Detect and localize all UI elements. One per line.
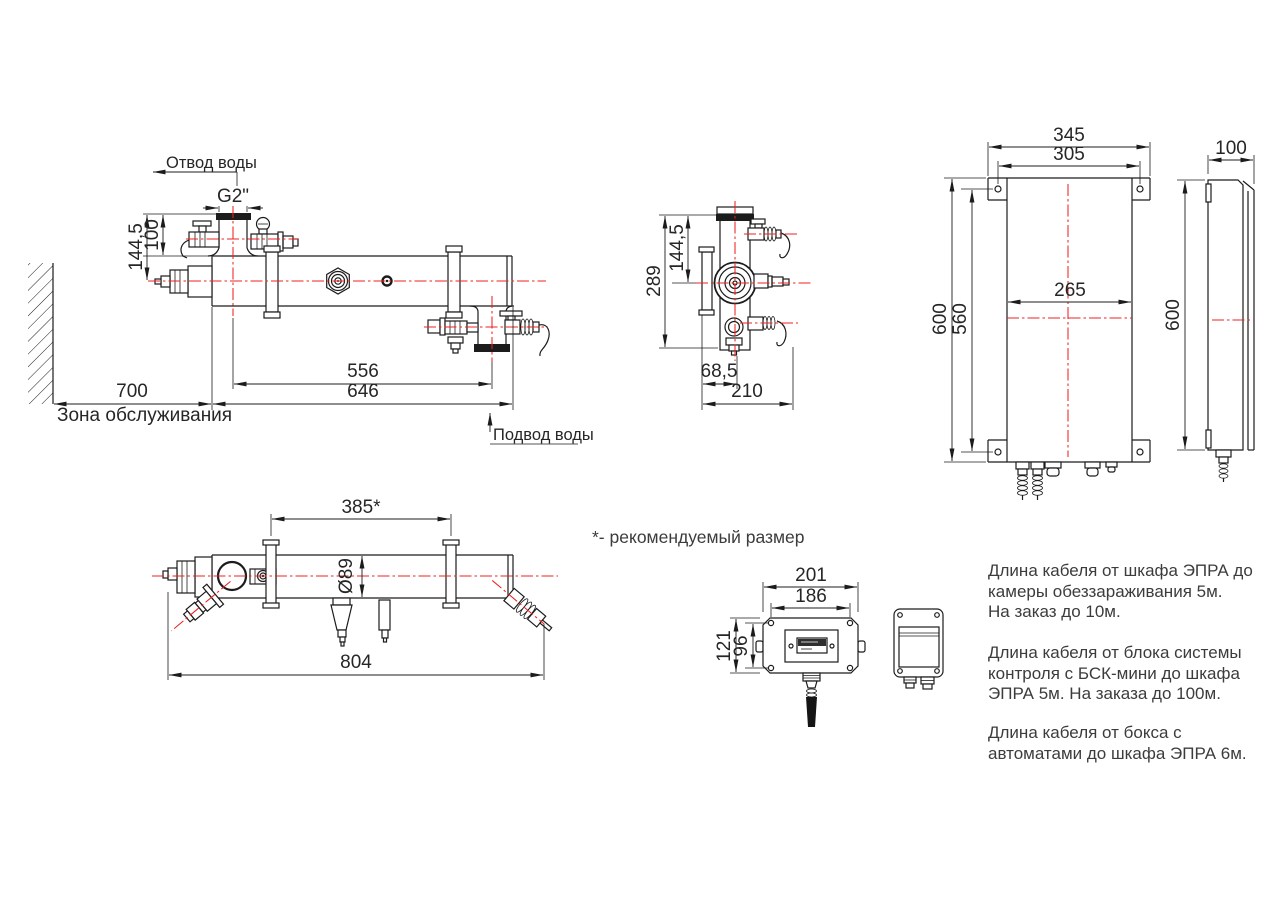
dim-cab-mount-width-text: 305	[1053, 144, 1085, 165]
inlet-label-leader: Подвод воды	[490, 413, 594, 444]
dim-cab-depth-text: 100	[1215, 138, 1247, 159]
cabinet-side-door	[1243, 181, 1254, 450]
top-view-probe	[379, 600, 390, 642]
side-tab-left	[756, 641, 763, 652]
dim-box-mount-width-text: 186	[795, 586, 827, 607]
cabinet-side-gland	[1216, 450, 1231, 482]
display-screen	[798, 639, 826, 646]
dim-cab-width-text: 345	[1053, 125, 1085, 146]
dim-box-mount-height-text: 96	[731, 635, 752, 656]
drain-valve-bottom	[428, 318, 478, 353]
dim-wall-offset-text: 700	[116, 381, 148, 402]
dim-body-length-text: 646	[347, 381, 379, 402]
note-line: Длина кабеля от бокса с	[988, 723, 1273, 744]
dim-100: 100	[142, 215, 163, 255]
breaker-box-glands	[904, 677, 934, 689]
dim-cab-inner-width-text: 265	[1054, 280, 1086, 301]
outlet-water-label: Отвод воды	[166, 154, 257, 172]
end-view-lower-valve	[748, 317, 786, 346]
breaker-box-view	[894, 609, 943, 689]
control-box-cable	[803, 673, 820, 727]
dim-overall-length-text: 804	[340, 652, 372, 673]
top-view-right-diagonal-valve	[487, 574, 556, 636]
dim-186: 186	[771, 586, 850, 617]
side-view: Отвод воды G2" 144,5 100 700 Зона обслуж…	[28, 154, 594, 444]
dim-valve-height-text: 100	[142, 219, 163, 251]
wall-hatch	[28, 263, 53, 404]
mounting-bracket-left	[264, 246, 280, 318]
note-line: Длина кабеля от шкафа ЭПРА до	[988, 561, 1273, 582]
technical-drawing-page: Отвод воды G2" 144,5 100 700 Зона обслуж…	[0, 0, 1273, 900]
dim-600-side: 600	[1163, 180, 1205, 450]
end-view-bracket	[699, 247, 714, 315]
note-paragraph-3: Длина кабеля от бокса с автоматами до шк…	[988, 723, 1273, 764]
note-paragraph-2: Длина кабеля от блока системы контроля с…	[988, 643, 1273, 705]
dim-700: 700	[54, 307, 212, 410]
note-line: Длина кабеля от блока системы	[988, 643, 1273, 664]
cabinet-side-body	[1208, 180, 1243, 450]
top-view: 385* Ø89 804	[152, 497, 558, 680]
dim-bracket-span-text: 385*	[341, 497, 381, 518]
dim-ports-span-text: 556	[347, 361, 379, 382]
dim-depth-text: 210	[731, 381, 763, 402]
dim-100-side: 100	[1208, 138, 1254, 184]
control-box-view: 201 186 121 96	[714, 565, 865, 727]
drawing-svg: Отвод воды G2" 144,5 100 700 Зона обслуж…	[0, 0, 1273, 900]
end-view-upper-valve	[748, 219, 790, 258]
side-tab-right	[858, 641, 865, 652]
dim-385: 385*	[271, 497, 451, 536]
cabinet-front-outline	[988, 178, 1150, 462]
dim-cab-mount-height-text: 560	[950, 303, 971, 335]
dim-thread-text: G2"	[217, 186, 249, 207]
outlet-label-leader: Отвод воды	[153, 154, 257, 186]
dim-265: 265	[1008, 280, 1131, 302]
dim-cab-height-text: 600	[930, 303, 951, 335]
footnote: *- рекомендуемый размер	[592, 527, 805, 548]
end-view: 289 144,5 68,5 210	[644, 201, 812, 410]
hinge-top	[1206, 184, 1211, 202]
dim-axis-height-end-text: 144,5	[667, 224, 688, 272]
dim-height-text: 289	[644, 265, 665, 297]
dim-560: 560	[950, 189, 993, 452]
note-line: ЭПРА 5м. На заказа до 100м.	[988, 684, 1273, 705]
dim-offset-text: 68,5	[701, 361, 738, 382]
top-view-end-cap	[163, 557, 212, 597]
note-line: На заказ до 10м.	[988, 602, 1273, 623]
dim-144-5-end: 144,5	[667, 216, 696, 283]
end-view-sample-port	[754, 274, 789, 288]
hinge-bottom	[1206, 430, 1211, 448]
note-paragraph-1: Длина кабеля от шкафа ЭПРА до камеры обе…	[988, 561, 1273, 623]
note-line: автоматами до шкафа ЭПРА 6м.	[988, 744, 1273, 765]
dim-804: 804	[168, 592, 544, 680]
note-line: камеры обеззараживания 5м.	[988, 582, 1273, 603]
top-view-solenoid	[331, 598, 352, 646]
dim-box-width-text: 201	[795, 565, 827, 586]
cabinet-side-view: 100 600	[1163, 138, 1254, 482]
display-bezel	[785, 630, 838, 662]
cabinet-cable-glands	[1016, 462, 1117, 500]
note-line: контроля с БСК-мини до шкафа	[988, 664, 1273, 685]
service-zone-label: Зона обслуживания	[57, 405, 232, 426]
cabinet-front-view: 345 305 265 600 560	[930, 125, 1150, 500]
mounting-bracket-right	[446, 246, 462, 318]
dim-diameter-text: Ø89	[336, 558, 357, 594]
dim-cab-side-height-text: 600	[1163, 299, 1184, 331]
inlet-water-label: Подвод воды	[493, 426, 594, 444]
